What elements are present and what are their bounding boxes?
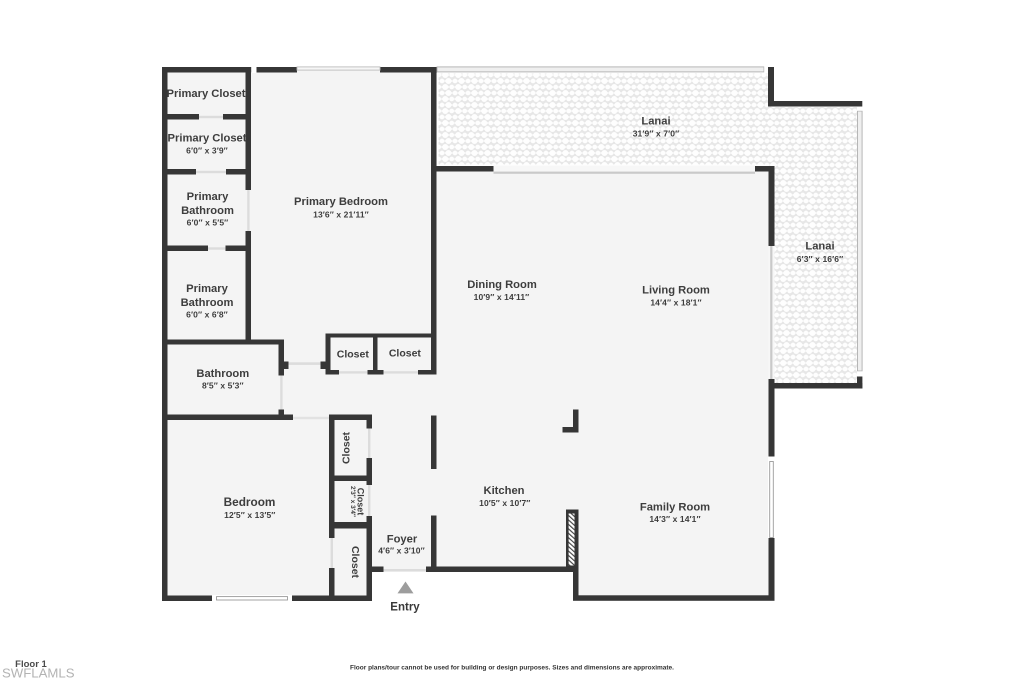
svg-text:SWFLAMLS: SWFLAMLS	[2, 666, 75, 681]
svg-text:Bedroom: Bedroom	[224, 495, 276, 509]
svg-text:Lanai: Lanai	[805, 241, 834, 253]
svg-text:4′6″ x 3′10″: 4′6″ x 3′10″	[378, 546, 425, 556]
svg-text:Closet: Closet	[349, 546, 361, 579]
svg-text:6′0″ x 3′9″: 6′0″ x 3′9″	[186, 146, 228, 156]
svg-text:12′5″ x 13′5″: 12′5″ x 13′5″	[224, 510, 275, 520]
svg-text:10′9″ x 14′11″: 10′9″ x 14′11″	[474, 292, 530, 302]
svg-text:6′3″ x 16′6″: 6′3″ x 16′6″	[797, 254, 844, 264]
svg-text:Closet: Closet	[337, 349, 370, 361]
svg-text:Closet: Closet	[389, 348, 422, 360]
svg-text:14′3″ x 14′1″: 14′3″ x 14′1″	[649, 514, 700, 524]
svg-text:10′5″ x 10′7″: 10′5″ x 10′7″	[479, 498, 530, 508]
svg-text:Kitchen: Kitchen	[483, 485, 524, 497]
svg-text:Bathroom: Bathroom	[196, 368, 249, 380]
svg-text:31′9″ x 7′0″: 31′9″ x 7′0″	[633, 129, 680, 139]
svg-text:Closet: Closet	[356, 488, 366, 516]
svg-text:Primary Closet: Primary Closet	[167, 88, 246, 100]
svg-text:Primary Closet: Primary Closet	[168, 133, 247, 145]
svg-text:13′6″ x 21′11″: 13′6″ x 21′11″	[313, 210, 369, 220]
svg-text:Primary: Primary	[186, 283, 228, 295]
svg-text:Floor plans/tour cannot be use: Floor plans/tour cannot be used for buil…	[350, 665, 674, 672]
svg-text:Lanai: Lanai	[641, 116, 670, 128]
svg-text:14′4″ x 18′1″: 14′4″ x 18′1″	[650, 298, 701, 308]
svg-text:6′0″ x 6′8″: 6′0″ x 6′8″	[186, 310, 228, 320]
svg-text:Living Room: Living Room	[642, 285, 710, 297]
svg-text:Entry: Entry	[390, 602, 420, 614]
svg-text:2′3″ x 3′4″: 2′3″ x 3′4″	[349, 486, 356, 517]
svg-text:Foyer: Foyer	[387, 534, 418, 546]
svg-text:Bathroom: Bathroom	[181, 205, 234, 217]
svg-text:Bathroom: Bathroom	[181, 297, 234, 309]
svg-text:Dining Room: Dining Room	[467, 279, 537, 291]
svg-text:Primary Bedroom: Primary Bedroom	[294, 196, 388, 208]
svg-text:6′0″ x 5′5″: 6′0″ x 5′5″	[187, 218, 229, 228]
svg-text:Family Room: Family Room	[640, 502, 710, 514]
svg-text:Primary: Primary	[187, 191, 229, 203]
svg-text:Closet: Closet	[340, 431, 352, 464]
svg-text:8′5″ x 5′3″: 8′5″ x 5′3″	[202, 381, 244, 391]
